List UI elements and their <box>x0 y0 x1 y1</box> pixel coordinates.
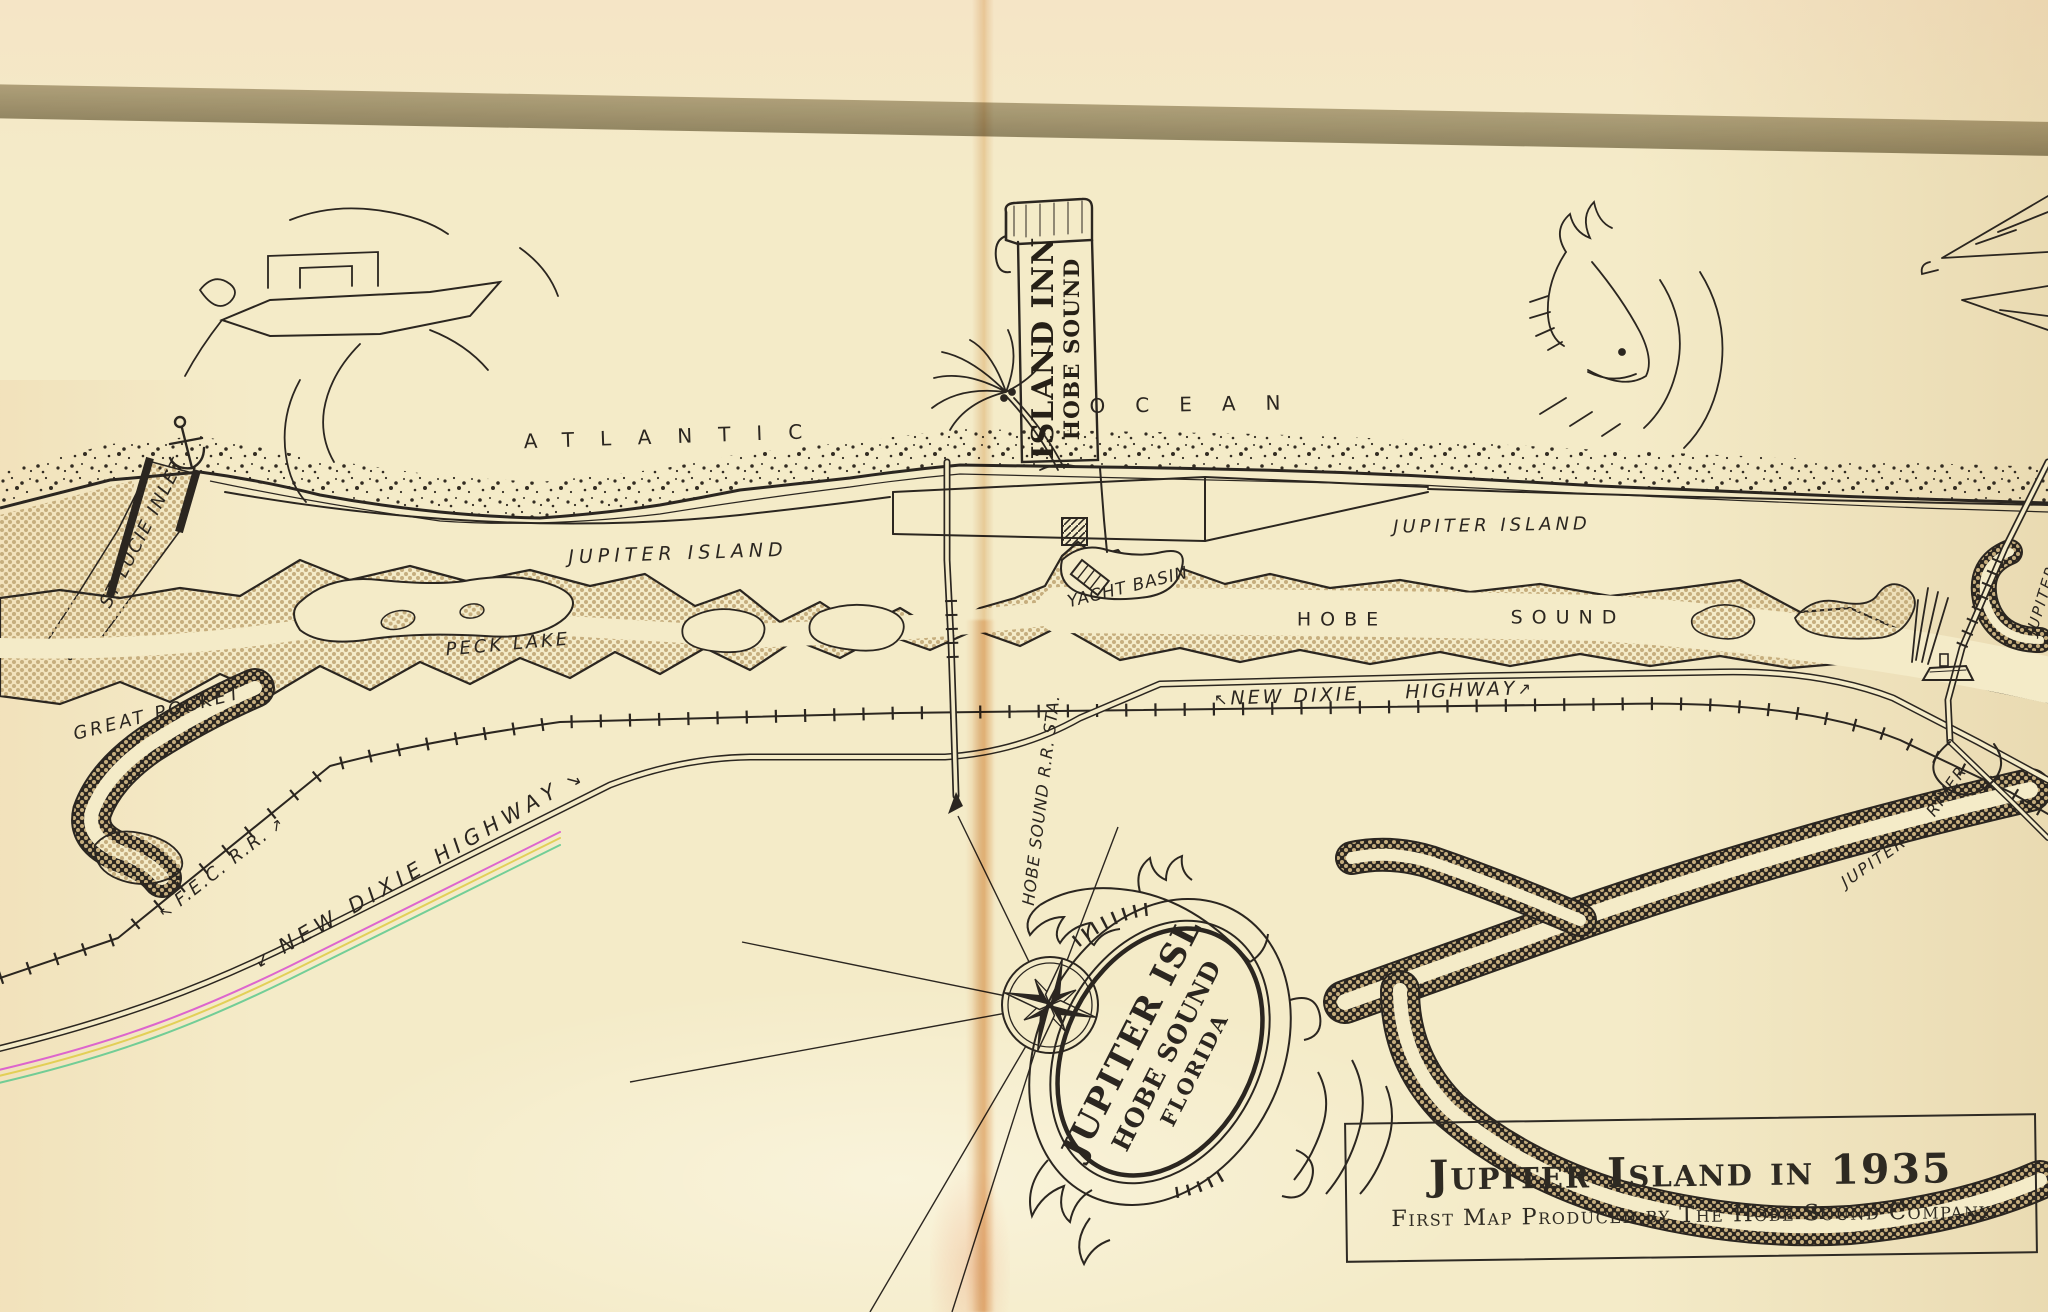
island-inn-line1: ISLAND INN <box>1026 228 1060 468</box>
arrow-up-right-icon: ↗ <box>1517 679 1534 699</box>
compass-rose <box>630 816 1118 1312</box>
ocean-label: OCEAN <box>1089 392 1310 416</box>
island-inn-line2: HOBE SOUND <box>1060 229 1086 469</box>
title-box: Jupiter Island in 1935 First Map Produce… <box>1344 1113 2038 1263</box>
hobe-label: HOBE <box>1297 611 1387 630</box>
map-canvas <box>0 0 2048 1312</box>
arrow-up-left-icon: ↖ <box>1214 690 1231 710</box>
sound-label: SOUND <box>1511 609 1626 628</box>
highway-text: HIGHWAY <box>1405 679 1518 702</box>
map-title: Jupiter Island in 1935 <box>1429 1144 1953 1199</box>
scanned-map-page: ATLANTIC OCEAN JUPITER ISLAND JUPITER IS… <box>0 0 2048 1312</box>
new-dixie-text: NEW DIXIE <box>1230 685 1359 708</box>
sailboat-sketch <box>1922 196 2048 330</box>
fish-sketch <box>1530 202 1723 448</box>
fold-foot-blotch <box>930 1170 1010 1312</box>
building-marker <box>1062 518 1087 545</box>
map-subtitle: First Map Produced by The Hobe Sound Com… <box>1391 1198 1992 1232</box>
jupiter-island-east-label: JUPITER ISLAND <box>1393 515 1591 536</box>
waterways <box>0 462 2048 1226</box>
